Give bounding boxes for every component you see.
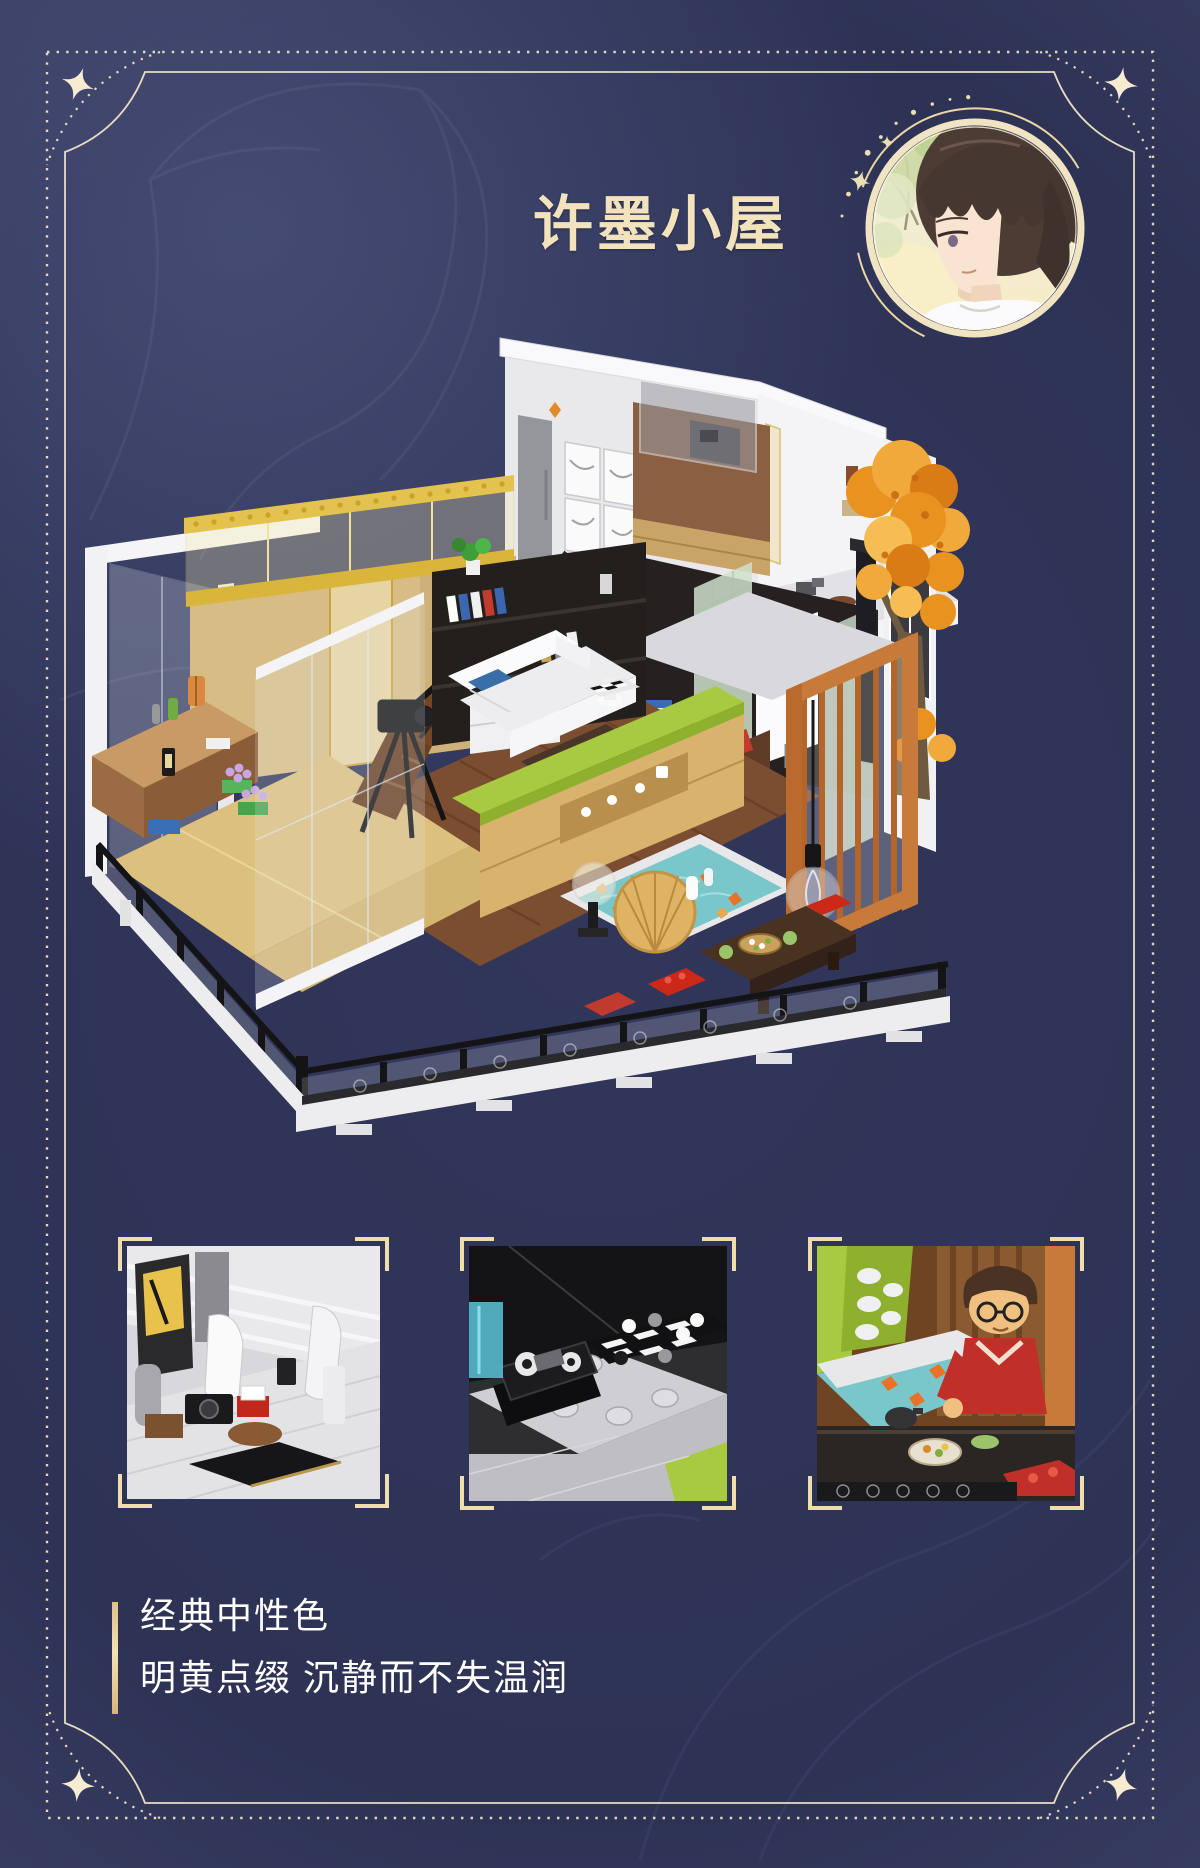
detail-photo-checkerboard-image xyxy=(469,1246,727,1501)
sofa xyxy=(448,630,636,758)
caption-line-1: 经典中性色 xyxy=(140,1598,812,1634)
left-mezzanine xyxy=(85,475,516,934)
sparkle-icon xyxy=(841,95,971,218)
corner-stars xyxy=(57,63,1142,1806)
detail-photo-checkerboard xyxy=(469,1246,727,1501)
gold-corner-bracket xyxy=(118,1237,152,1271)
coffee-table xyxy=(520,724,646,806)
lime-counter xyxy=(452,686,744,918)
caption-block: 经典中性色 明黄点缀 沉静而不失温润 xyxy=(112,1598,812,1696)
gold-corner-bracket xyxy=(702,1476,736,1510)
gold-corner-bracket xyxy=(460,1237,494,1271)
gold-corner-bracket xyxy=(1050,1237,1084,1271)
dotted-border xyxy=(47,52,1153,1818)
wood-slat-screen xyxy=(786,632,918,967)
checkerboard-table xyxy=(584,678,640,706)
gold-corner-bracket xyxy=(118,1474,152,1508)
bookshelf xyxy=(432,538,646,754)
detail-photo-desk xyxy=(127,1246,380,1499)
poster: 许墨小屋 xyxy=(0,0,1200,1868)
page-title: 许墨小屋 xyxy=(533,176,789,263)
glass-display-case xyxy=(256,592,424,1010)
plant xyxy=(452,538,491,575)
gold-corner-bracket xyxy=(355,1474,389,1508)
detail-photo-minifigure xyxy=(817,1246,1075,1501)
frame-border xyxy=(0,0,1200,1868)
solid-border xyxy=(65,72,1134,1803)
gold-corner-bracket xyxy=(460,1476,494,1510)
floors xyxy=(110,592,900,992)
avatar-outer-arc xyxy=(858,108,1078,336)
gold-corner-bracket xyxy=(808,1237,842,1271)
tea-area xyxy=(573,863,856,1016)
tan-wall xyxy=(190,556,516,786)
gold-corner-bracket xyxy=(702,1237,736,1271)
detail-photo-desk-image xyxy=(127,1246,380,1499)
detail-photo-minifigure-image xyxy=(817,1246,1075,1501)
crystal-lamp xyxy=(787,700,839,920)
koi-pond xyxy=(560,834,800,950)
autumn-tree xyxy=(846,440,970,800)
four-point-star-icon xyxy=(1100,1764,1142,1806)
gold-glass-railing xyxy=(184,475,514,607)
watermark-art xyxy=(60,84,487,700)
gold-corner-bracket xyxy=(1050,1476,1084,1510)
fence-railing xyxy=(92,844,950,1135)
upper-kitchen-room xyxy=(500,338,958,662)
gold-accent-bar xyxy=(112,1602,118,1714)
gold-corner-bracket xyxy=(355,1237,389,1271)
avatar-ring xyxy=(869,122,1081,334)
four-point-star-icon xyxy=(60,1767,97,1804)
caption-line-2: 明黄点缀 沉静而不失温润 xyxy=(140,1660,812,1696)
studio-area xyxy=(636,438,936,862)
camera-tripod xyxy=(362,556,572,838)
stairs xyxy=(352,552,578,820)
stove-pipe xyxy=(856,548,876,764)
avatar xyxy=(0,0,1200,1868)
bar-counter xyxy=(92,676,268,838)
corner-arcs xyxy=(47,52,1153,1818)
four-point-star-icon xyxy=(57,63,100,106)
four-point-star-icon xyxy=(1102,65,1140,103)
gold-corner-bracket xyxy=(808,1476,842,1510)
glass-block-wall xyxy=(694,562,876,862)
product-photo-house xyxy=(0,0,1200,1868)
avatar-image xyxy=(856,98,1088,347)
red-mats xyxy=(584,894,852,1016)
